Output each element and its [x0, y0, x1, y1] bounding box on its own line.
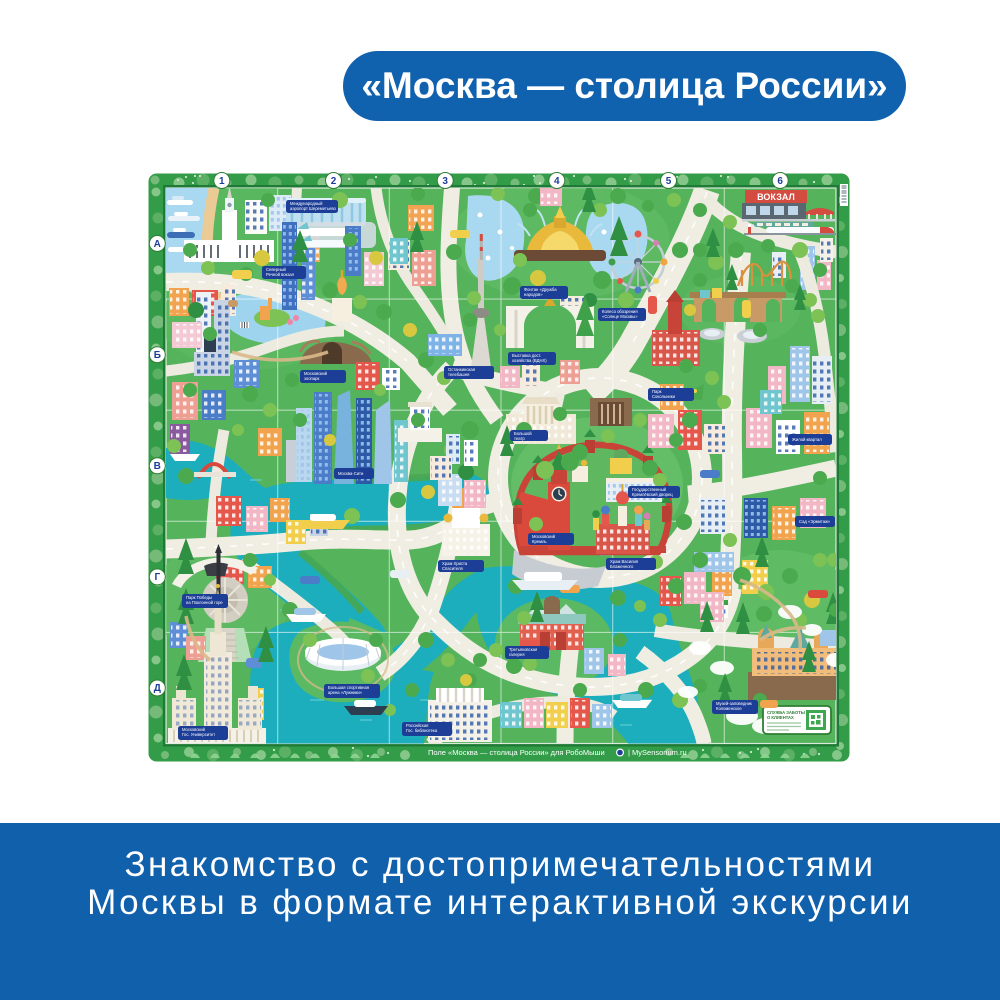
svg-text:народов»: народов» [524, 292, 543, 297]
svg-text:арена «Лужники»: арена «Лужники» [328, 690, 363, 695]
svg-text:Жилой квартал: Жилой квартал [792, 437, 822, 442]
svg-text:Речной вокзал: Речной вокзал [266, 272, 295, 277]
svg-text:Кремль: Кремль [532, 539, 547, 544]
svg-text:В: В [154, 461, 161, 472]
svg-text:1: 1 [219, 176, 225, 187]
svg-text:Москва-Сити: Москва-Сити [338, 471, 364, 476]
svg-text:Гос. Университет: Гос. Университет [182, 732, 215, 737]
svg-text:Г: Г [154, 572, 160, 583]
svg-text:Б: Б [154, 350, 161, 361]
svg-text:Коломенское: Коломенское [716, 706, 742, 711]
svg-text:Поле «Москва — столица России»: Поле «Москва — столица России» для РобоМ… [428, 748, 605, 757]
svg-text:Гос. библиотека: Гос. библиотека [406, 728, 438, 733]
svg-text:| MySensorium.ru: | MySensorium.ru [628, 748, 687, 757]
svg-text:3: 3 [442, 176, 448, 187]
svg-text:Спасителя: Спасителя [442, 566, 463, 571]
svg-text:5: 5 [666, 176, 672, 187]
svg-text:4: 4 [554, 176, 560, 187]
svg-text:на Поклонной горе: на Поклонной горе [186, 600, 223, 605]
svg-text:Блаженного: Блаженного [610, 564, 634, 569]
svg-text:ВОКЗАЛ: ВОКЗАЛ [757, 192, 795, 202]
svg-text:Сокольники: Сокольники [652, 394, 676, 399]
svg-text:2: 2 [331, 176, 337, 187]
svg-text:театр: театр [514, 436, 525, 441]
svg-text:Кремлёвский дворец: Кремлёвский дворец [632, 492, 673, 497]
svg-text:О КЛИЕНТАХ: О КЛИЕНТАХ [767, 715, 794, 720]
svg-text:телебашня: телебашня [448, 372, 469, 377]
svg-text:хозяйства (ВДНХ): хозяйства (ВДНХ) [512, 358, 547, 363]
svg-text:Сад «Эрмитаж»: Сад «Эрмитаж» [799, 519, 831, 524]
svg-text:галерея: галерея [509, 652, 524, 657]
svg-text:«Солнце Москвы»: «Солнце Москвы» [602, 314, 638, 319]
svg-text:аэропорт Шереметьево: аэропорт Шереметьево [290, 206, 337, 211]
svg-text:Д: Д [154, 683, 161, 694]
svg-text:6: 6 [777, 176, 783, 187]
svg-text:А: А [154, 239, 161, 250]
svg-text:зоопарк: зоопарк [304, 376, 319, 381]
